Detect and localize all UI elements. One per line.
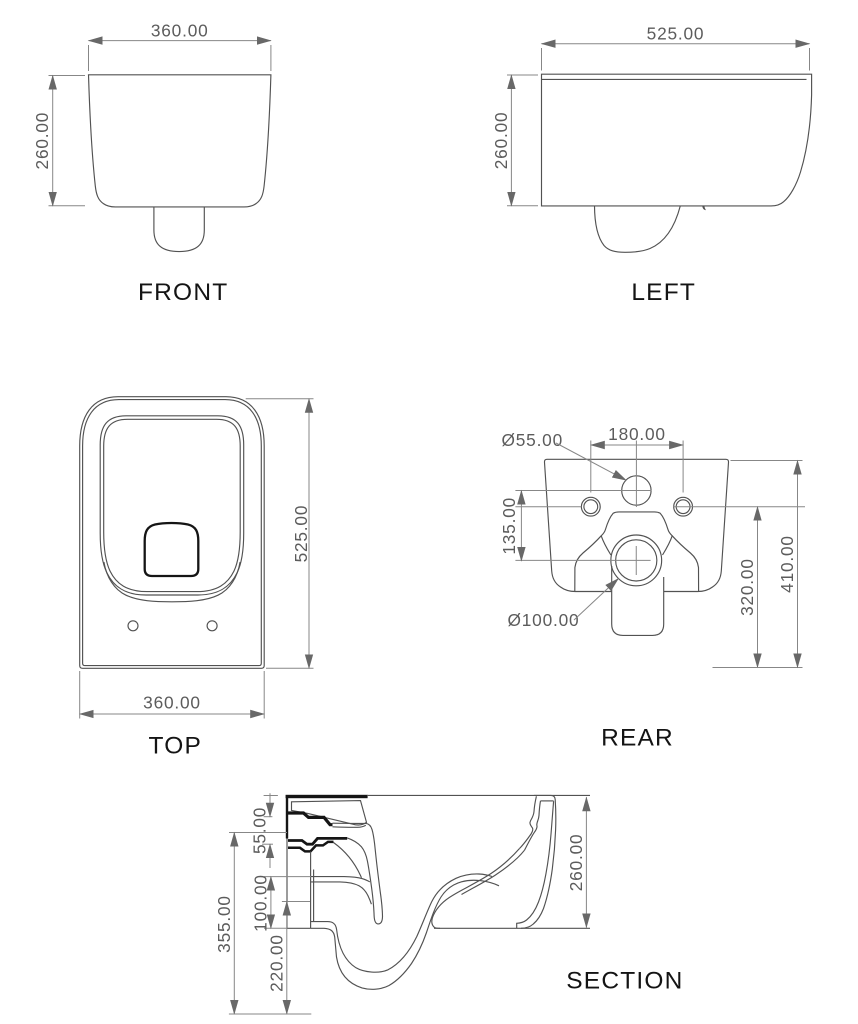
svg-text:Ø55.00: Ø55.00: [502, 430, 564, 450]
svg-text:260.00: 260.00: [491, 112, 511, 170]
svg-text:260.00: 260.00: [566, 834, 586, 892]
svg-text:180.00: 180.00: [608, 424, 666, 444]
svg-text:55.00: 55.00: [250, 807, 270, 854]
svg-text:320.00: 320.00: [737, 558, 757, 616]
svg-text:Ø100.00: Ø100.00: [508, 610, 580, 630]
svg-text:SECTION: SECTION: [566, 968, 683, 995]
svg-text:100.00: 100.00: [250, 874, 270, 932]
svg-text:355.00: 355.00: [214, 895, 234, 953]
svg-text:135.00: 135.00: [499, 497, 519, 555]
svg-text:TOP: TOP: [149, 733, 203, 760]
svg-text:LEFT: LEFT: [631, 279, 696, 306]
svg-text:360.00: 360.00: [151, 20, 209, 40]
svg-text:360.00: 360.00: [143, 693, 201, 713]
svg-text:410.00: 410.00: [777, 535, 797, 593]
svg-text:260.00: 260.00: [32, 112, 52, 170]
svg-text:REAR: REAR: [601, 725, 674, 752]
svg-text:FRONT: FRONT: [138, 279, 228, 306]
svg-text:220.00: 220.00: [266, 934, 286, 992]
svg-text:525.00: 525.00: [291, 505, 311, 563]
svg-text:525.00: 525.00: [647, 23, 705, 43]
